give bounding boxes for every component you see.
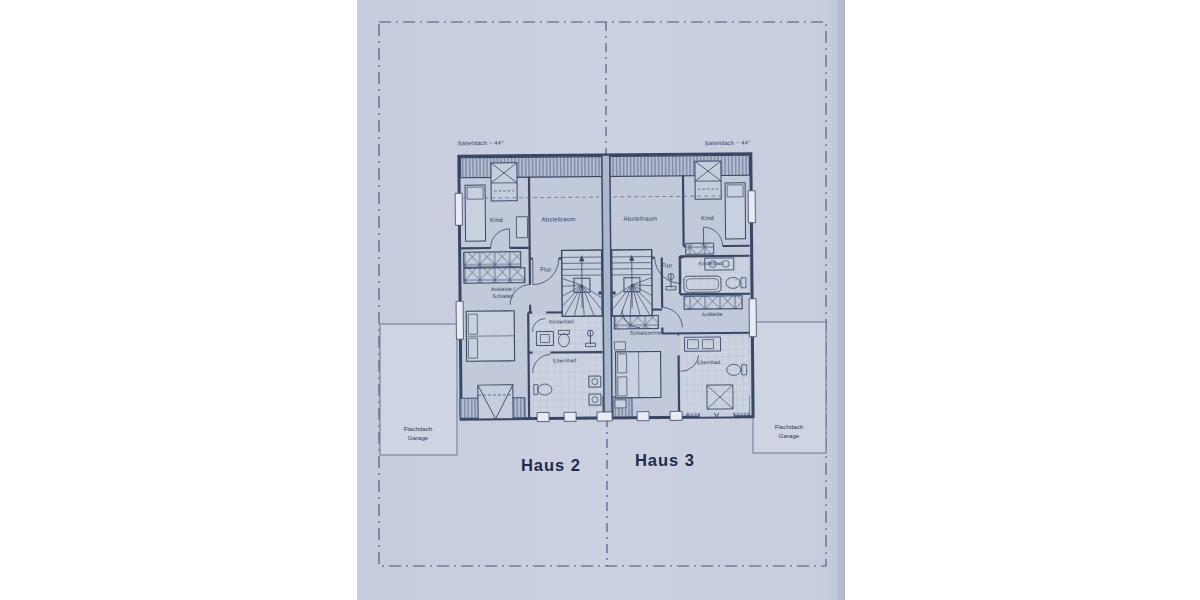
party-wall: [602, 155, 612, 418]
paper-edge-shadow: [838, 0, 845, 600]
roof-note-left: Satteldach ~ 44°: [458, 140, 504, 146]
haus2-elternbad-floor: [531, 354, 603, 417]
garage-right: Flachdach Garage: [753, 322, 826, 453]
haus2-closet-row-2: [464, 268, 525, 284]
haus3-label-elternbad: Elternbad: [697, 359, 720, 365]
haus2-label-elternbad: Elternbad: [553, 357, 576, 363]
haus2-closet-row-1: [464, 252, 521, 267]
haus3-label-schlafzimmer: Schlafzimmer: [630, 330, 663, 336]
haus2-label-ankleide-2: Schlafen: [493, 293, 514, 299]
garage-left: Flachdach Garage: [380, 324, 457, 455]
haus3-bed-kind: [725, 183, 745, 239]
haus2-kind-furniture: [516, 217, 527, 238]
floor-plan-drawing: Flachdach Garage Flachdach Garage Sattel…: [0, 0, 1200, 600]
haus2-stairs: [562, 250, 603, 316]
garage-right-label-line1: Flachdach: [775, 423, 804, 430]
haus3-bed-schlafzimmer: [614, 342, 661, 408]
haus2-bed-schlafen: [466, 311, 514, 361]
building: Satteldach ~ 44° Satteldach ~ 44°: [455, 138, 757, 423]
haus3-label-kinderbad: Kinderbad: [698, 260, 723, 266]
haus2-label-abstellraum: Abstellraum: [541, 216, 575, 222]
haus3-label-kind: Kind: [701, 215, 714, 221]
garage-left-label-line1: Flachdach: [404, 425, 433, 432]
haus2-bed-kind: [465, 185, 485, 241]
screenshot: Flachdach Garage Flachdach Garage Sattel…: [0, 0, 1200, 600]
haus2-label-flur: Flur: [540, 266, 551, 272]
haus3-stairs: [612, 250, 653, 316]
haus2-title: Haus 2: [521, 456, 581, 474]
roof-note-right: Satteldach ~ 44°: [705, 140, 751, 146]
haus2-label-kinderbad: Kinderbad: [549, 318, 574, 324]
haus3-closet-row-ankleide: [684, 296, 742, 310]
haus3-label-flur: Flur: [661, 262, 672, 268]
roof-window-right: [695, 161, 721, 199]
garage-right-label-line2: Garage: [779, 432, 800, 439]
garage-left-label-line2: Garage: [408, 434, 429, 441]
haus3-closet-row-kind: [686, 243, 714, 254]
haus2-label-kind: Kind: [490, 217, 503, 223]
haus3-title: Haus 3: [635, 451, 695, 469]
roof-dormer-left: [478, 385, 513, 419]
haus3-label-ankleide: Ankleide: [702, 311, 723, 317]
haus3-label-abstellraum: Abstellraum: [623, 216, 657, 222]
roof-window-left: [491, 163, 517, 201]
haus2-label-ankleide-1: Ankleide-/: [491, 286, 516, 292]
